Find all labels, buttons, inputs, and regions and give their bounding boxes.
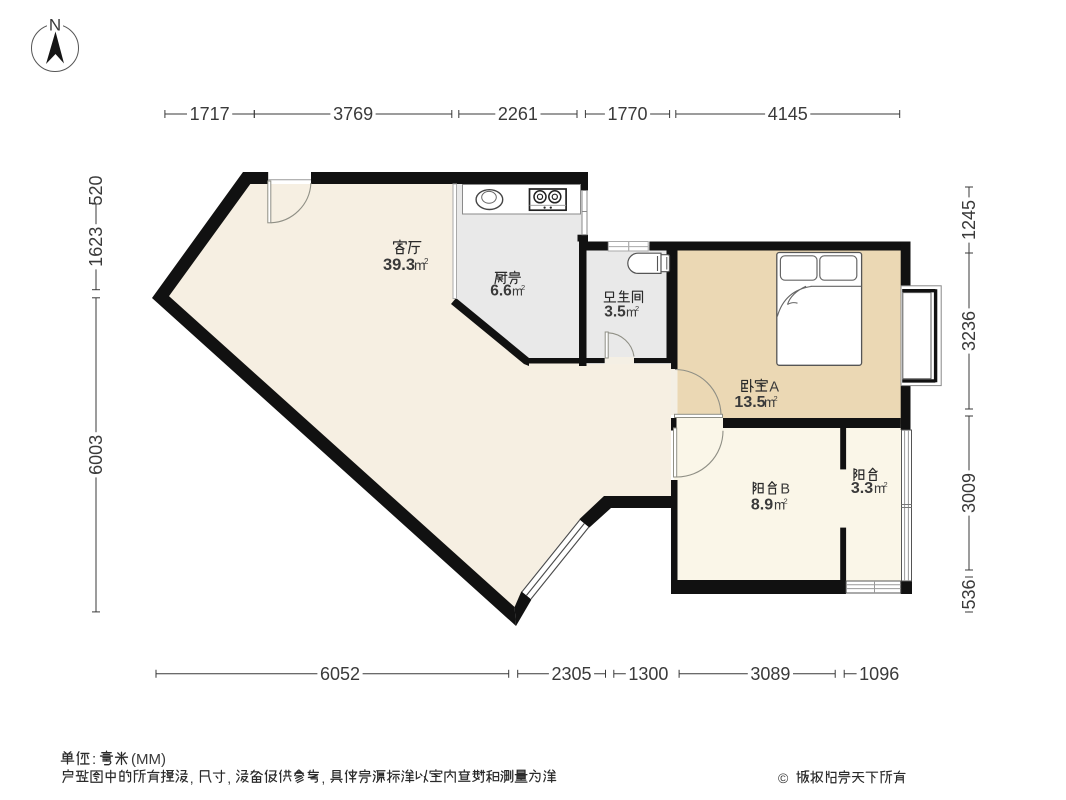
- svg-text:536: 536: [959, 579, 979, 609]
- svg-text:2: 2: [424, 257, 429, 266]
- svg-text:8.9: 8.9: [751, 497, 773, 514]
- svg-text:6.6: 6.6: [490, 283, 512, 300]
- svg-text:2: 2: [521, 283, 525, 292]
- svg-text:1717: 1717: [190, 104, 230, 124]
- svg-text:4145: 4145: [768, 104, 808, 124]
- svg-text:2: 2: [635, 304, 639, 313]
- svg-text:2: 2: [884, 480, 888, 489]
- svg-text:2305: 2305: [551, 664, 591, 684]
- svg-text:1623: 1623: [86, 227, 106, 267]
- svg-text:,: ,: [321, 770, 325, 786]
- svg-text:N: N: [49, 16, 61, 35]
- svg-text:B: B: [780, 482, 790, 498]
- svg-text:,: ,: [190, 770, 194, 786]
- svg-text:3009: 3009: [959, 473, 979, 513]
- svg-text:3769: 3769: [333, 104, 373, 124]
- svg-text::: :: [92, 751, 96, 768]
- svg-text:3236: 3236: [959, 311, 979, 351]
- svg-text:1245: 1245: [959, 200, 979, 240]
- svg-text:,: ,: [227, 770, 231, 786]
- svg-text:3.3: 3.3: [851, 480, 873, 497]
- svg-text:(MM): (MM): [131, 751, 166, 768]
- svg-text:2261: 2261: [498, 104, 538, 124]
- svg-text:3.5: 3.5: [604, 304, 626, 321]
- svg-text:1770: 1770: [607, 104, 647, 124]
- svg-text:6052: 6052: [320, 664, 360, 684]
- svg-text:1096: 1096: [859, 664, 899, 684]
- svg-text:13.5: 13.5: [734, 394, 765, 411]
- svg-text:1300: 1300: [628, 664, 668, 684]
- svg-text:3089: 3089: [750, 664, 790, 684]
- svg-text:2: 2: [784, 497, 788, 506]
- svg-text:39.3: 39.3: [383, 256, 415, 274]
- svg-text:6003: 6003: [86, 435, 106, 475]
- svg-text:2: 2: [774, 394, 778, 403]
- svg-text:520: 520: [86, 175, 106, 205]
- svg-text:©: ©: [778, 770, 789, 786]
